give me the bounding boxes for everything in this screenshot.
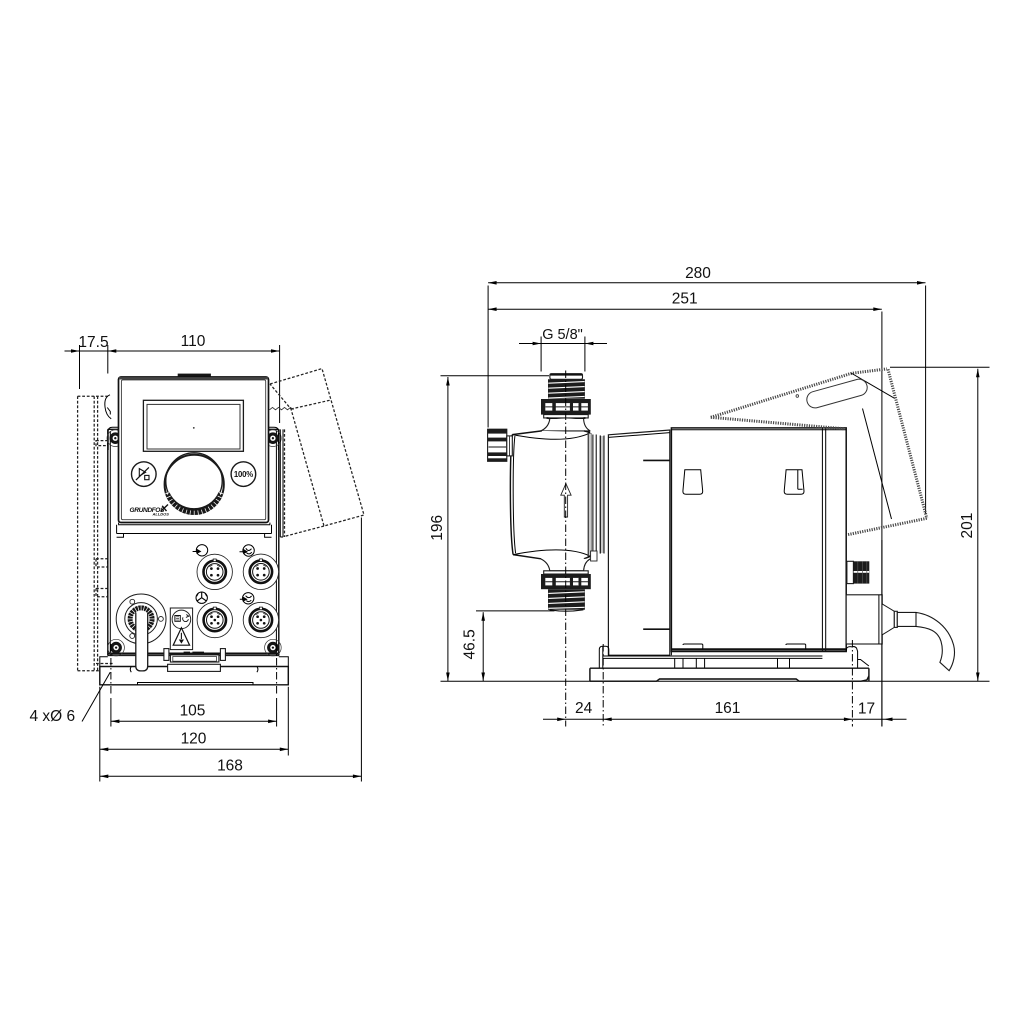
svg-text:168: 168	[217, 757, 243, 774]
svg-text:161: 161	[715, 700, 741, 717]
svg-text:280: 280	[685, 265, 711, 282]
svg-text:G 5/8": G 5/8"	[542, 327, 583, 343]
svg-text:ALLDOS: ALLDOS	[152, 511, 170, 516]
svg-text:120: 120	[181, 730, 207, 747]
svg-text:46.5: 46.5	[461, 629, 478, 659]
svg-text:110: 110	[181, 333, 206, 350]
svg-text:17: 17	[858, 700, 875, 717]
svg-text:251: 251	[672, 291, 698, 308]
svg-text:196: 196	[429, 515, 446, 541]
svg-text:105: 105	[180, 702, 206, 719]
svg-text:24: 24	[575, 700, 593, 717]
svg-text:100%: 100%	[234, 470, 253, 479]
svg-text:201: 201	[959, 513, 976, 539]
svg-text:17.5: 17.5	[78, 334, 108, 351]
svg-text:4 xØ 6: 4 xØ 6	[30, 708, 76, 725]
